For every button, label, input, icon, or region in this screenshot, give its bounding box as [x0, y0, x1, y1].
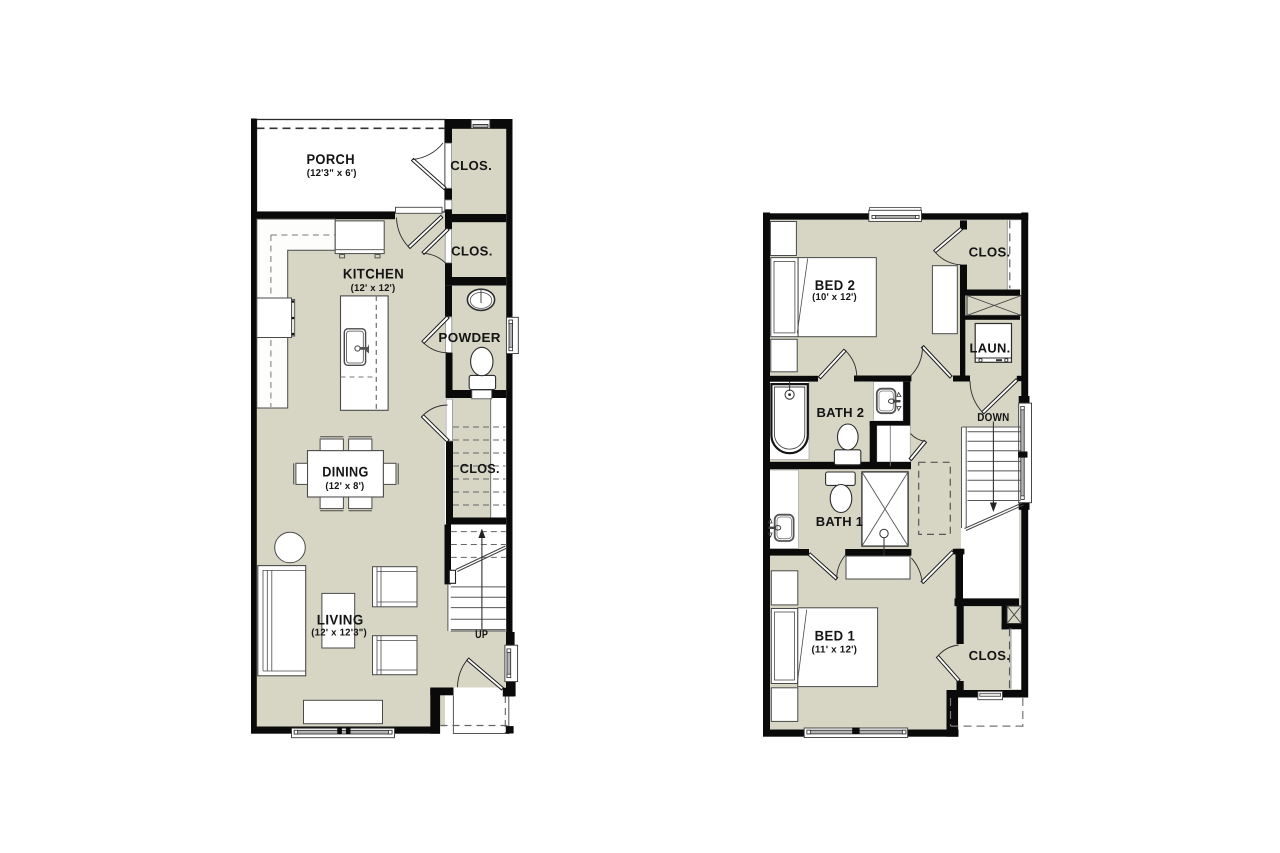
svg-text:CLOS.: CLOS.	[969, 245, 1011, 260]
svg-text:CLOS.: CLOS.	[460, 461, 500, 476]
svg-text:CLOS.: CLOS.	[451, 244, 493, 259]
svg-text:DOWN: DOWN	[977, 412, 1009, 424]
svg-text:LIVING: LIVING	[317, 611, 364, 627]
svg-text:KITCHEN: KITCHEN	[343, 265, 404, 281]
svg-text:(11' x 12'): (11' x 12')	[811, 645, 857, 656]
svg-text:BED 1: BED 1	[815, 628, 856, 644]
svg-text:PORCH: PORCH	[306, 151, 355, 167]
svg-text:LAUN.: LAUN.	[970, 341, 1011, 356]
svg-text:(12' x 12'3"): (12' x 12'3")	[311, 628, 367, 639]
svg-text:(12' x 8'): (12' x 8')	[325, 481, 364, 492]
svg-text:(12' x 12'): (12' x 12')	[351, 283, 396, 294]
svg-text:BATH 1: BATH 1	[816, 514, 864, 529]
svg-text:(12'3" x 6'): (12'3" x 6')	[307, 168, 357, 179]
svg-text:DINING: DINING	[322, 464, 368, 480]
svg-text:BATH 2: BATH 2	[816, 405, 864, 420]
svg-text:(10' x 12'): (10' x 12')	[812, 292, 857, 303]
svg-text:CLOS.: CLOS.	[450, 158, 492, 173]
svg-text:POWDER: POWDER	[438, 330, 501, 345]
svg-text:UP: UP	[475, 629, 488, 641]
svg-text:BED 2: BED 2	[815, 277, 856, 293]
svg-text:CLOS.: CLOS.	[969, 648, 1011, 663]
